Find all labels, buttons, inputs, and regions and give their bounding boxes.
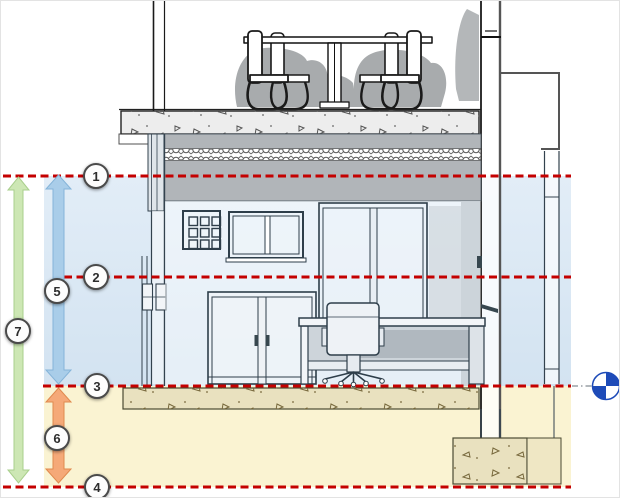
right-wall-shadow (455, 9, 479, 101)
wall-shading (429, 206, 461, 321)
glazed-partition-door (319, 203, 427, 319)
level-marker-3: 3 (84, 373, 110, 399)
level-marker-4: 4 (84, 474, 110, 498)
window-sill (226, 258, 306, 262)
level-marker-2: 2 (83, 264, 109, 290)
chair-back (327, 303, 379, 355)
range-marker-5: 5 (44, 278, 70, 304)
dining-table-top (244, 37, 432, 43)
cabinet-doors (208, 292, 316, 384)
interior-window (226, 212, 306, 262)
wall-control-panel (183, 211, 221, 249)
desk-left-leg (301, 326, 308, 384)
range-marker-6: 6 (44, 425, 70, 451)
section-diagram: 1 2 3 4 5 6 7 (0, 0, 620, 498)
ground-floor-slab (123, 388, 479, 409)
desk-right-panel (469, 326, 484, 384)
chair-stem (347, 355, 360, 372)
dining-table-base (320, 102, 349, 108)
view-target-icon (593, 373, 620, 400)
range-marker-7: 7 (5, 318, 31, 344)
window-latch (477, 256, 482, 268)
cabinet-handle-right (266, 335, 270, 346)
level-marker-1: 1 (83, 163, 109, 189)
cabinet-handle-left (255, 335, 259, 346)
ceiling-plenum (148, 134, 481, 201)
upper-floor-furniture (119, 31, 481, 110)
section-drawing (1, 1, 620, 498)
